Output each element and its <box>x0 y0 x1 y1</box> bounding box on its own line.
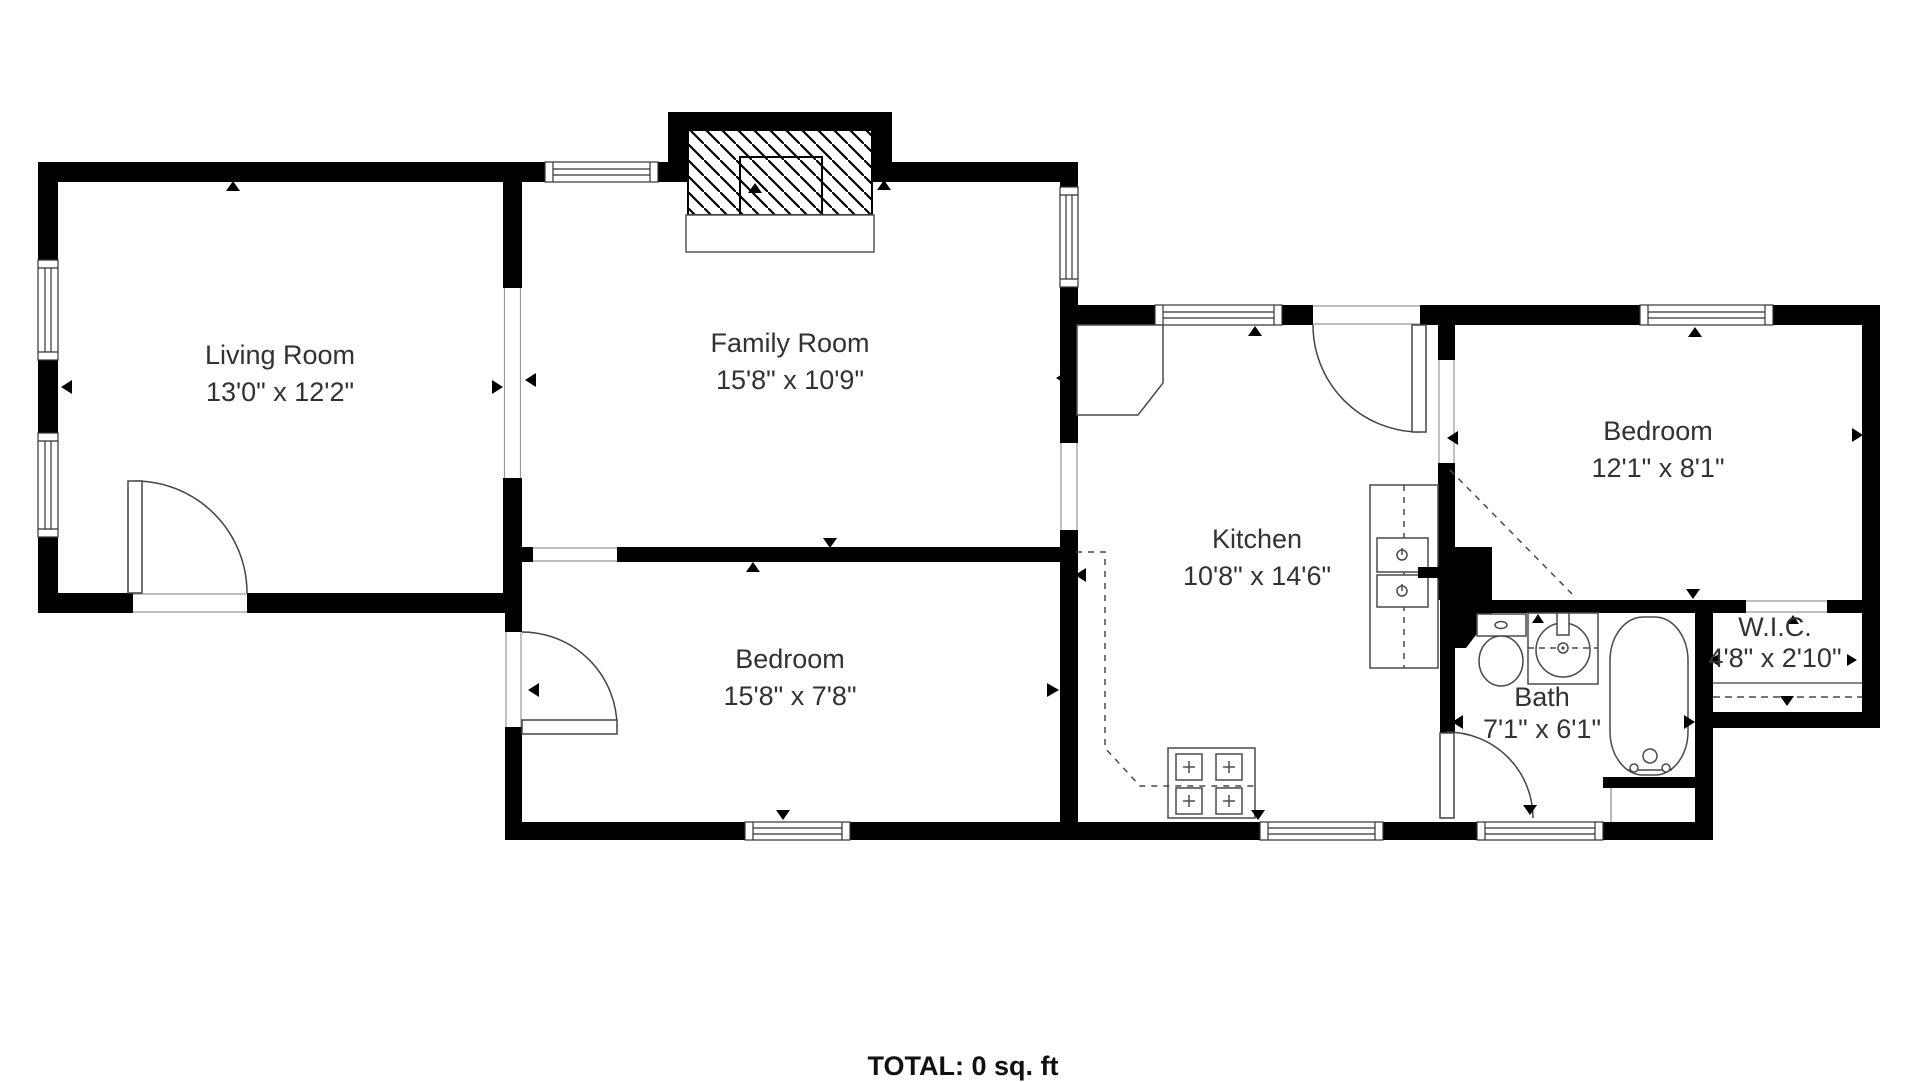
room-dims: 7'1" x 6'1" <box>1483 713 1601 745</box>
kitchen-sink-icon <box>1370 485 1450 668</box>
window <box>1640 305 1773 325</box>
door-living-room <box>128 481 247 593</box>
toilet-icon <box>1477 614 1526 686</box>
window <box>1060 187 1078 287</box>
room-dims: 12'1" x 8'1" <box>1591 450 1724 487</box>
room-name: Kitchen <box>1183 521 1331 558</box>
door-kitchen-back <box>1313 325 1426 432</box>
floor-plan-graphics <box>0 0 1920 1080</box>
floor-plan: Living Room 13'0" x 12'2" Family Room 15… <box>0 0 1920 1080</box>
room-name: Bedroom <box>723 641 856 678</box>
bathtub-icon <box>1610 617 1688 775</box>
door-bedroom-bottom <box>522 632 617 734</box>
window <box>545 162 658 182</box>
stove-icon <box>1168 748 1255 818</box>
fireplace-icon <box>686 130 874 252</box>
room-dims: 15'8" x 7'8" <box>723 678 856 715</box>
room-label-kitchen: Kitchen 10'8" x 14'6" <box>1183 521 1331 595</box>
room-name: Family Room <box>710 325 869 362</box>
room-label-living-room: Living Room 13'0" x 12'2" <box>205 337 355 411</box>
room-dims: 4'8" x 2'10" <box>1708 643 1841 674</box>
window <box>38 433 58 537</box>
room-dims: 15'8" x 10'9" <box>710 362 869 399</box>
room-name: Bath <box>1483 681 1601 713</box>
room-label-family-room: Family Room 15'8" x 10'9" <box>710 325 869 399</box>
closet-shelf-icon <box>1713 683 1862 697</box>
total-area-label: TOTAL: 0 sq. ft <box>868 1051 1059 1082</box>
corner-pantry-icon <box>1077 325 1163 415</box>
room-label-bath: Bath 7'1" x 6'1" <box>1483 681 1601 745</box>
window <box>1260 822 1383 840</box>
room-dims: 13'0" x 12'2" <box>205 374 355 411</box>
window <box>1477 822 1603 840</box>
room-label-bedroom-bottom: Bedroom 15'8" x 7'8" <box>723 641 856 715</box>
room-label-wic: W.I.C. 4'8" x 2'10" <box>1708 612 1841 674</box>
room-name: Living Room <box>205 337 355 374</box>
room-name: Bedroom <box>1591 413 1724 450</box>
window <box>745 822 850 840</box>
room-label-bedroom-right: Bedroom 12'1" x 8'1" <box>1591 413 1724 487</box>
bathroom-sink-icon <box>1528 613 1598 684</box>
room-dims: 10'8" x 14'6" <box>1183 558 1331 595</box>
window <box>1155 305 1282 325</box>
window <box>38 260 58 360</box>
room-name: W.I.C. <box>1708 612 1841 643</box>
